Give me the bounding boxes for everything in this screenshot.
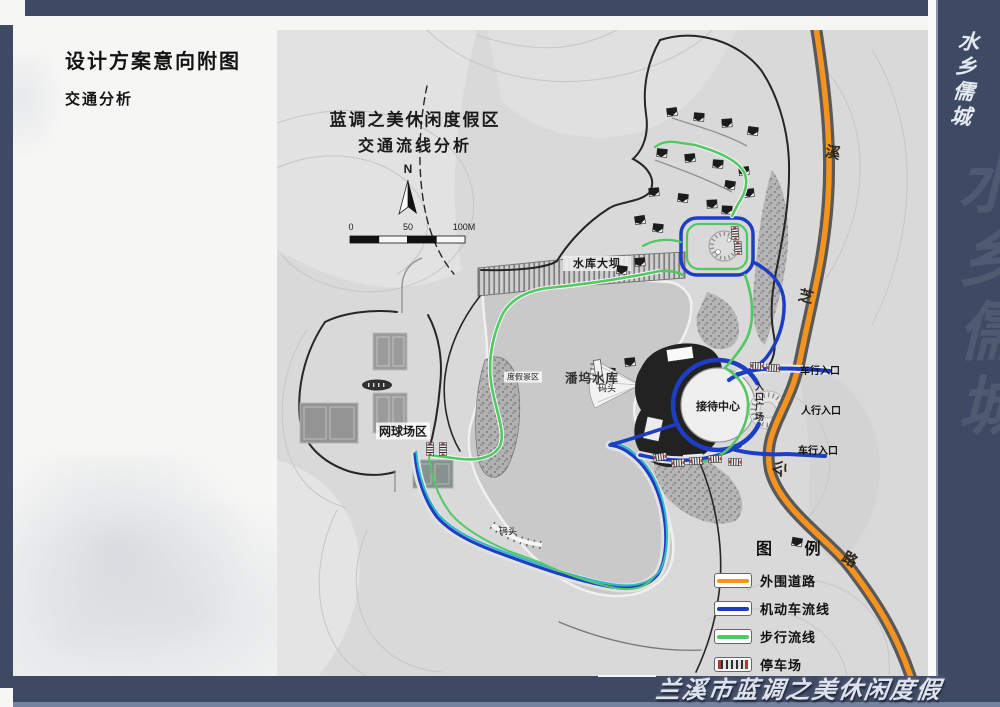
site-plan-map: 蓝调之美休闲度假区 交通流线分析 N 0 50 100M 水库大坝 潘坞水库 码… (277, 30, 930, 688)
dock-lower-label: 码头 (499, 525, 517, 538)
vehicle-entrance-upper-label: 车行入口 (800, 362, 840, 377)
vehicle-entrance-lower-label: 车行入口 (798, 442, 838, 457)
legend-item-walk-route: 步行流线 (714, 627, 874, 646)
frame-left (0, 25, 13, 688)
walk-route-swatch (714, 629, 752, 644)
outer-road-swatch (714, 573, 752, 588)
scale-tick-50: 50 (403, 222, 413, 232)
frame-top (25, 0, 1000, 16)
legend-item-outer-road: 外围道路 (714, 571, 874, 590)
footer-rule (598, 675, 656, 677)
north-label: N (404, 162, 413, 176)
motor-route-swatch (714, 601, 752, 616)
frame-right-gap (928, 0, 936, 684)
scale-tick-100: 100M (453, 222, 476, 232)
map-title-line1: 蓝调之美休闲度假区 (330, 106, 501, 131)
pedestrian-entrance-label: 人行入口 (801, 402, 841, 417)
dock-upper-label: 码头 (598, 382, 616, 395)
footer-calligraphy: 兰溪市蓝调之美休闲度假区 (643, 670, 945, 707)
entrance-plaza-label: 入口广场 (742, 382, 764, 424)
scenic-strip-label: 度假景区 (504, 372, 542, 383)
side-watermark-large: 水乡儒城 (938, 150, 1000, 690)
slide: 设计方案意向附图 交通分析 (0, 0, 1000, 707)
tennis-area-label: 网球场区 (376, 423, 430, 440)
page-subtitle: 交通分析 (65, 88, 133, 109)
legend: 图 例 外围道路 机动车流线 步行流线 停车场 (714, 535, 874, 683)
dam-label: 水库大坝 (573, 255, 621, 271)
legend-title: 图 例 (756, 535, 874, 559)
page-title: 设计方案意向附图 (65, 45, 241, 74)
seal-watermark (8, 455, 278, 685)
scale-tick-0: 0 (348, 222, 353, 232)
scale-bar (350, 236, 465, 243)
reception-center-label: 接待中心 (696, 398, 740, 414)
farmland-capsule (362, 380, 392, 391)
map-title-line2: 交通流线分析 (358, 132, 472, 156)
legend-item-motor-route: 机动车流线 (714, 599, 874, 618)
